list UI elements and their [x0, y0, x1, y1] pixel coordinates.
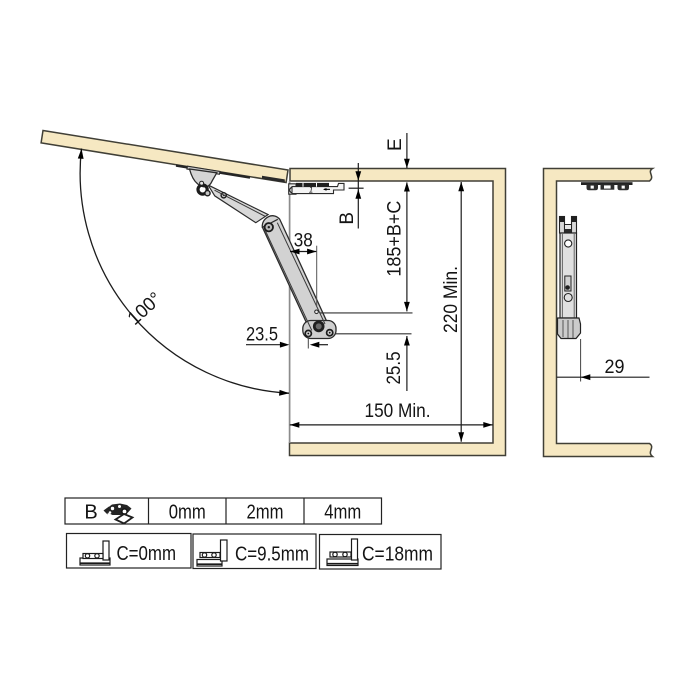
svg-text:B: B: [337, 212, 358, 225]
svg-text:C=9.5mm: C=9.5mm: [235, 544, 309, 566]
svg-text:220 Min.: 220 Min.: [441, 266, 462, 333]
svg-text:23.5: 23.5: [246, 325, 278, 346]
svg-text:150 Min.: 150 Min.: [365, 401, 431, 422]
svg-text:E: E: [385, 138, 406, 151]
svg-text:100°: 100°: [124, 289, 166, 330]
svg-text:2mm: 2mm: [247, 502, 284, 524]
svg-text:4mm: 4mm: [324, 502, 361, 524]
svg-text:1: 1: [309, 185, 313, 194]
svg-text:25.5: 25.5: [384, 352, 405, 385]
svg-text:38: 38: [294, 230, 313, 251]
svg-text:185+B+C: 185+B+C: [385, 201, 406, 277]
svg-text:C=0mm: C=0mm: [117, 543, 177, 565]
svg-text:B: B: [84, 502, 97, 524]
svg-text:0mm: 0mm: [169, 502, 206, 524]
svg-text:C=18mm: C=18mm: [362, 544, 433, 566]
svg-text:29: 29: [605, 357, 625, 378]
